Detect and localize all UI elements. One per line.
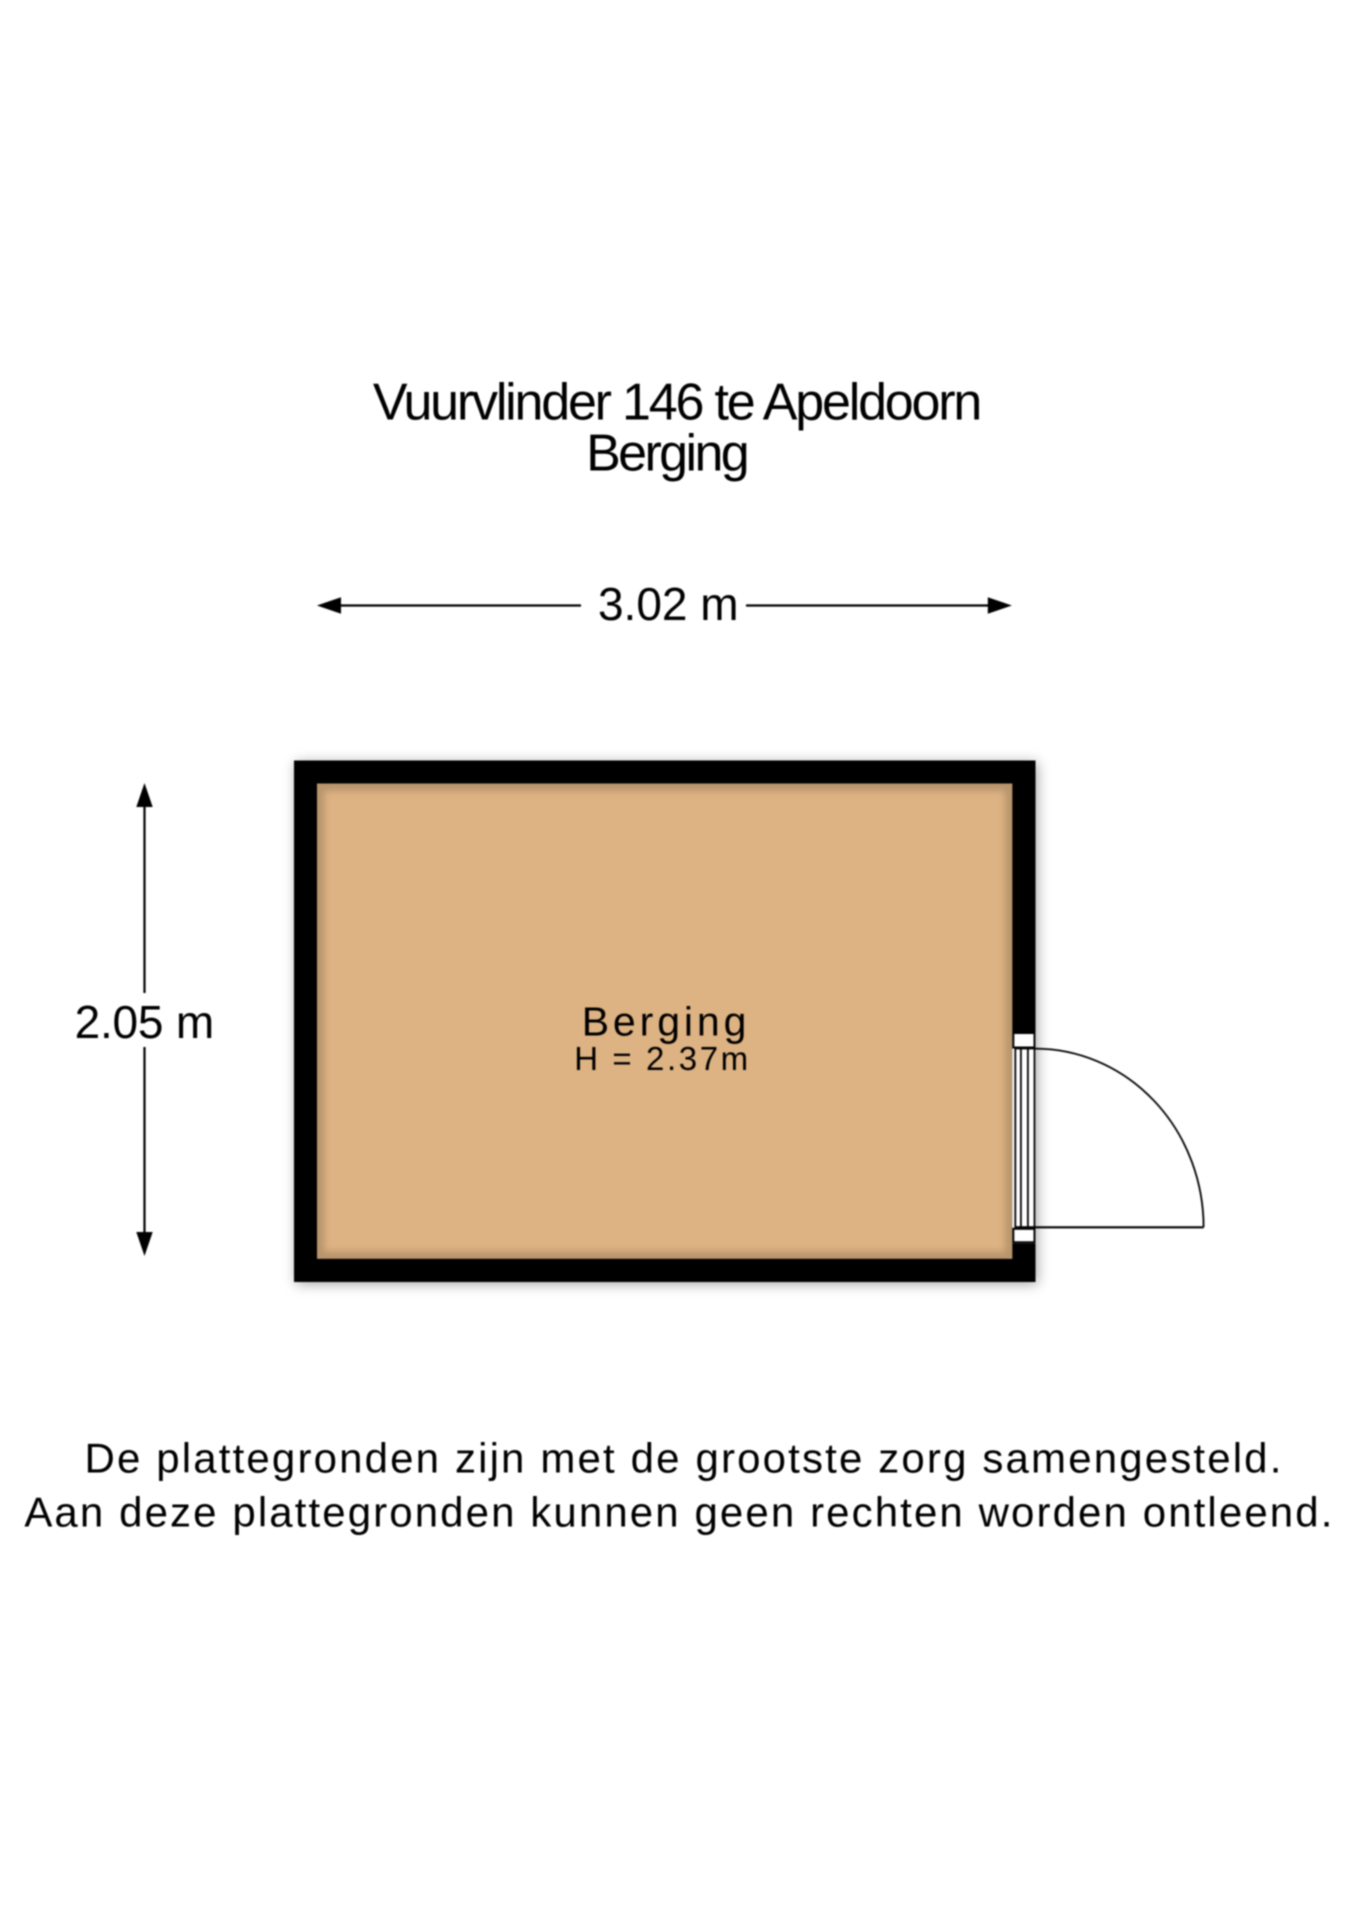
svg-text:2.05 m: 2.05 m [75, 996, 214, 1048]
svg-text:De plattegronden zijn met de g: De plattegronden zijn met de grootste zo… [84, 1435, 1283, 1482]
svg-text:Berging: Berging [582, 999, 751, 1045]
svg-text:3.02 m: 3.02 m [598, 578, 739, 630]
svg-text:Berging: Berging [586, 425, 747, 483]
svg-text:Vuurvlinder 146 te Apeldoorn: Vuurvlinder 146 te Apeldoorn [373, 374, 980, 432]
svg-text:Aan deze plattegronden kunnen: Aan deze plattegronden kunnen geen recht… [24, 1489, 1334, 1536]
svg-text:H = 2.37m: H = 2.37m [574, 1040, 751, 1077]
